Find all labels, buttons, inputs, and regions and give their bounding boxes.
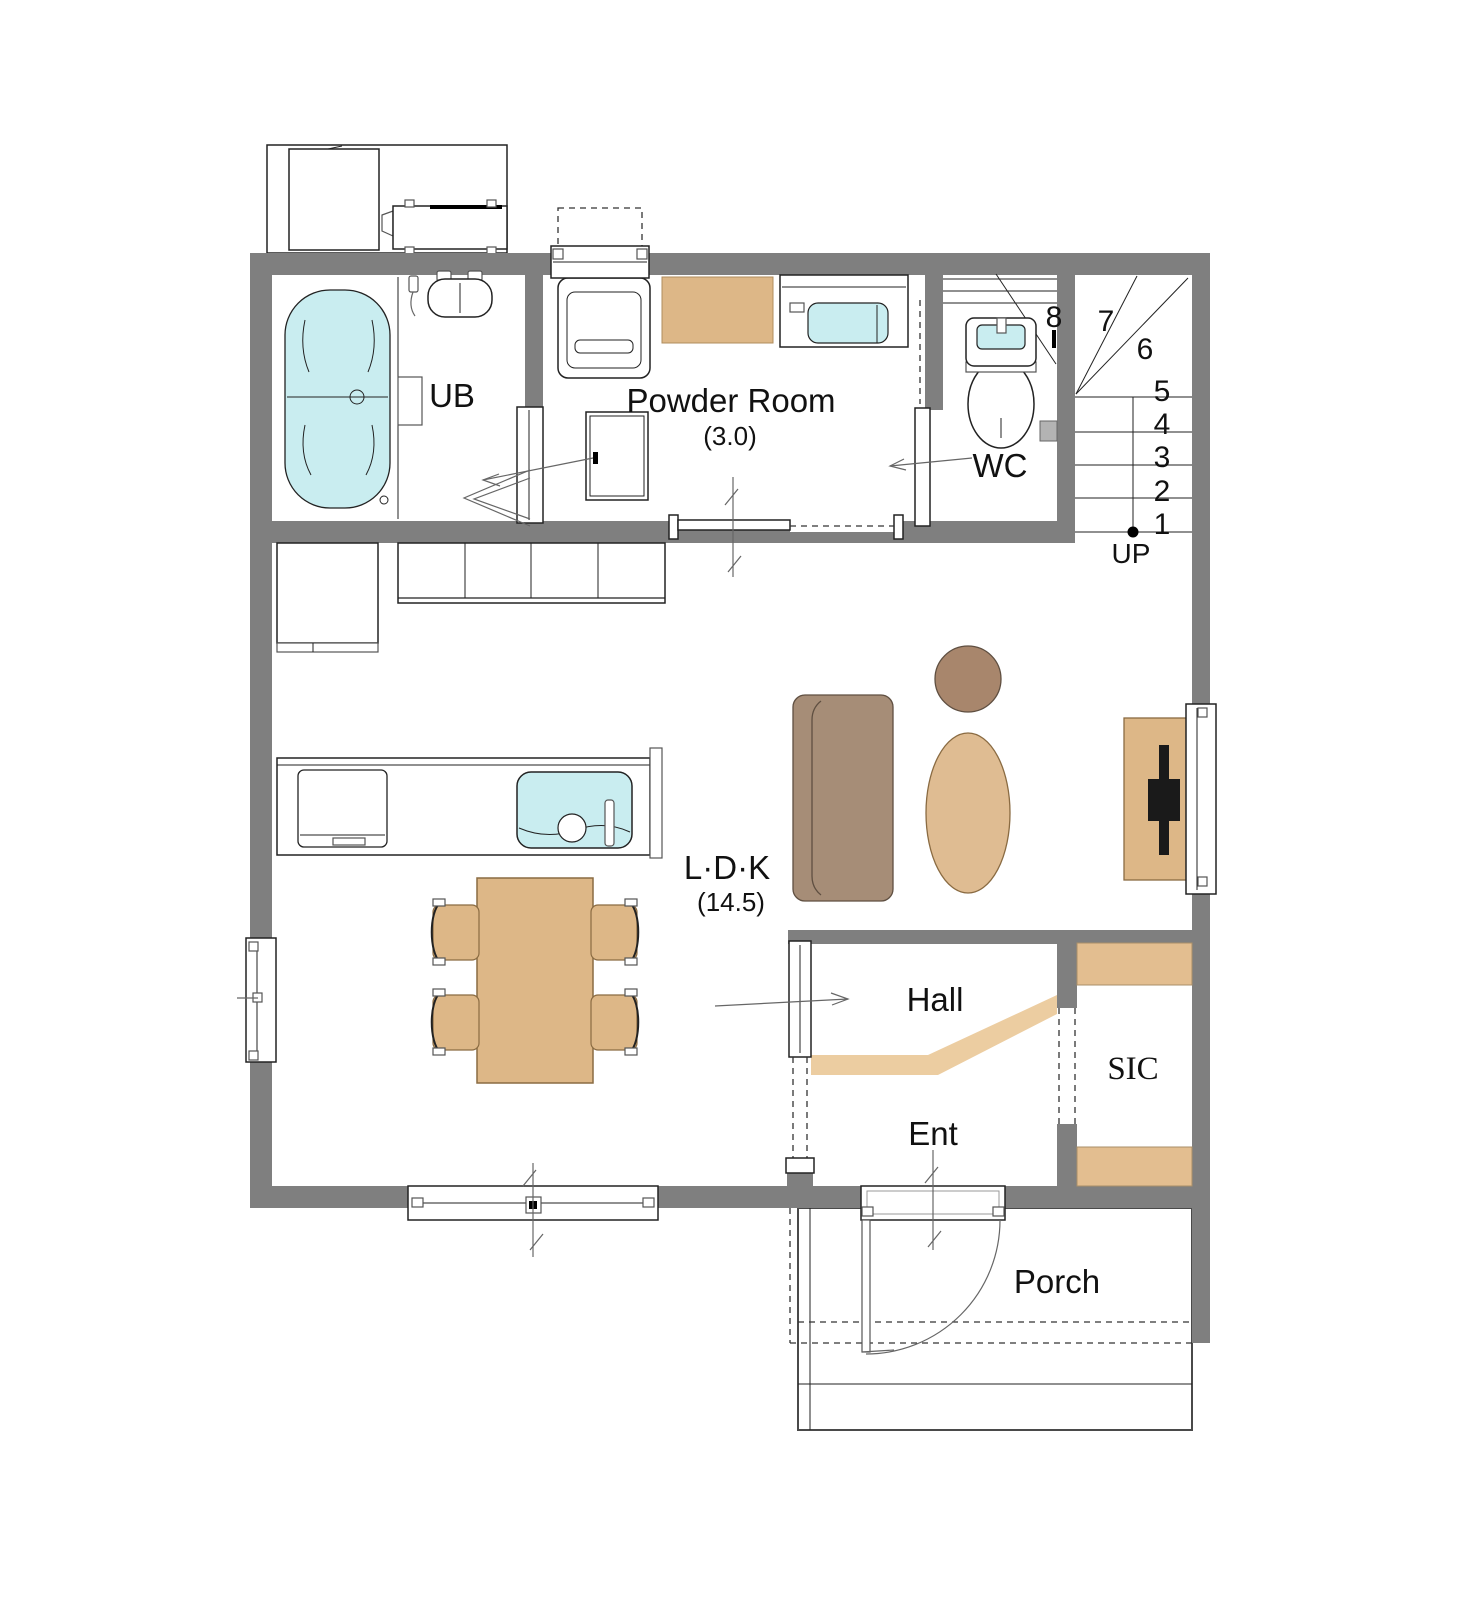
powder-counter: [662, 277, 773, 343]
vanity-faucet: [790, 303, 804, 312]
counter-side-panel: [650, 748, 662, 858]
tv-stand: [1148, 779, 1180, 821]
label-porch: Porch: [1014, 1263, 1100, 1300]
wall-left: [250, 253, 272, 1208]
ac-pipe-cover: [382, 211, 393, 236]
wall-ub-powder: [525, 275, 543, 407]
sink-faucet: [605, 800, 614, 846]
label-powder-size: (3.0): [703, 421, 756, 451]
chair: [432, 899, 479, 965]
up-start-dot: [1128, 527, 1139, 538]
label-ub: UB: [429, 377, 475, 414]
kitchen: [277, 543, 665, 858]
sic-shelf-top: [1077, 943, 1192, 985]
wall-top: [250, 253, 1210, 275]
stair-step-2: 2: [1154, 475, 1171, 508]
stair-step-7: 7: [1098, 305, 1115, 338]
stair-step-4: 4: [1154, 408, 1171, 441]
vanity-sink: [808, 303, 888, 343]
cabinet-handle: [593, 452, 598, 464]
winder-line-1: [1076, 278, 1188, 394]
bath-step: [398, 377, 422, 425]
water-heater-tank: [289, 149, 379, 250]
wall-hall-sic-upper: [1057, 944, 1077, 1008]
sofa: [793, 695, 893, 901]
paper-holder: [1040, 421, 1057, 441]
stove-handle: [333, 838, 365, 845]
shower-head: [409, 276, 418, 292]
chair: [591, 899, 638, 965]
wall-bottom: [250, 1186, 1210, 1208]
door-powder-pocket: [790, 518, 894, 532]
oval-rug: [926, 733, 1010, 893]
chair: [591, 989, 638, 1055]
living-area: [793, 646, 1192, 901]
wall-middle: [250, 521, 1075, 543]
stair-step-5: 5: [1154, 375, 1171, 408]
label-ldk-size: (14.5): [697, 887, 765, 917]
round-side-table: [935, 646, 1001, 712]
entrance-door-leaf: [862, 1220, 870, 1352]
door-wc: [915, 408, 930, 526]
porch-platform: [798, 1208, 1192, 1430]
dining-table: [477, 878, 593, 1083]
wall-hall-sic-lower: [1057, 1124, 1077, 1186]
stair-step-3: 3: [1154, 441, 1171, 474]
label-ldk: L·D·K: [684, 849, 770, 886]
dining-set: [432, 878, 639, 1083]
door-ub: [517, 407, 543, 523]
sink-drain: [558, 814, 586, 842]
staircase: [1075, 276, 1192, 538]
stair-step-6: 6: [1137, 333, 1154, 366]
label-hall: Hall: [907, 981, 964, 1018]
label-powder-room: Powder Room: [626, 382, 835, 419]
chair: [432, 989, 479, 1055]
label-ent: Ent: [908, 1115, 958, 1152]
stair-step-8: 8: [1046, 301, 1063, 334]
stair-up-label: UP: [1112, 538, 1151, 569]
refrigerator-space: [277, 543, 378, 643]
exterior-equipment: [267, 145, 507, 254]
floor-plan-drawing: UB Powder Room (3.0) WC L·D·K (14.5) Hal…: [0, 0, 1466, 1600]
sic-shelf-bottom: [1077, 1147, 1192, 1186]
toilet-tank-tap: [997, 318, 1006, 333]
bathtub: [285, 290, 390, 508]
door-powder-leaf: [678, 520, 790, 530]
stair-step-1: 1: [1154, 508, 1171, 541]
label-wc: WC: [973, 447, 1028, 484]
floor-plan-canvas: UB Powder Room (3.0) WC L·D·K (14.5) Hal…: [0, 0, 1466, 1600]
wall-hall-top: [788, 930, 1192, 944]
window-right: [1186, 704, 1216, 894]
label-sic: SIC: [1107, 1051, 1158, 1087]
wall-powder-wc: [925, 275, 943, 410]
porch-area: [790, 1186, 1192, 1430]
wc-room: [943, 274, 1057, 448]
ac-outdoor-unit: [393, 206, 507, 249]
